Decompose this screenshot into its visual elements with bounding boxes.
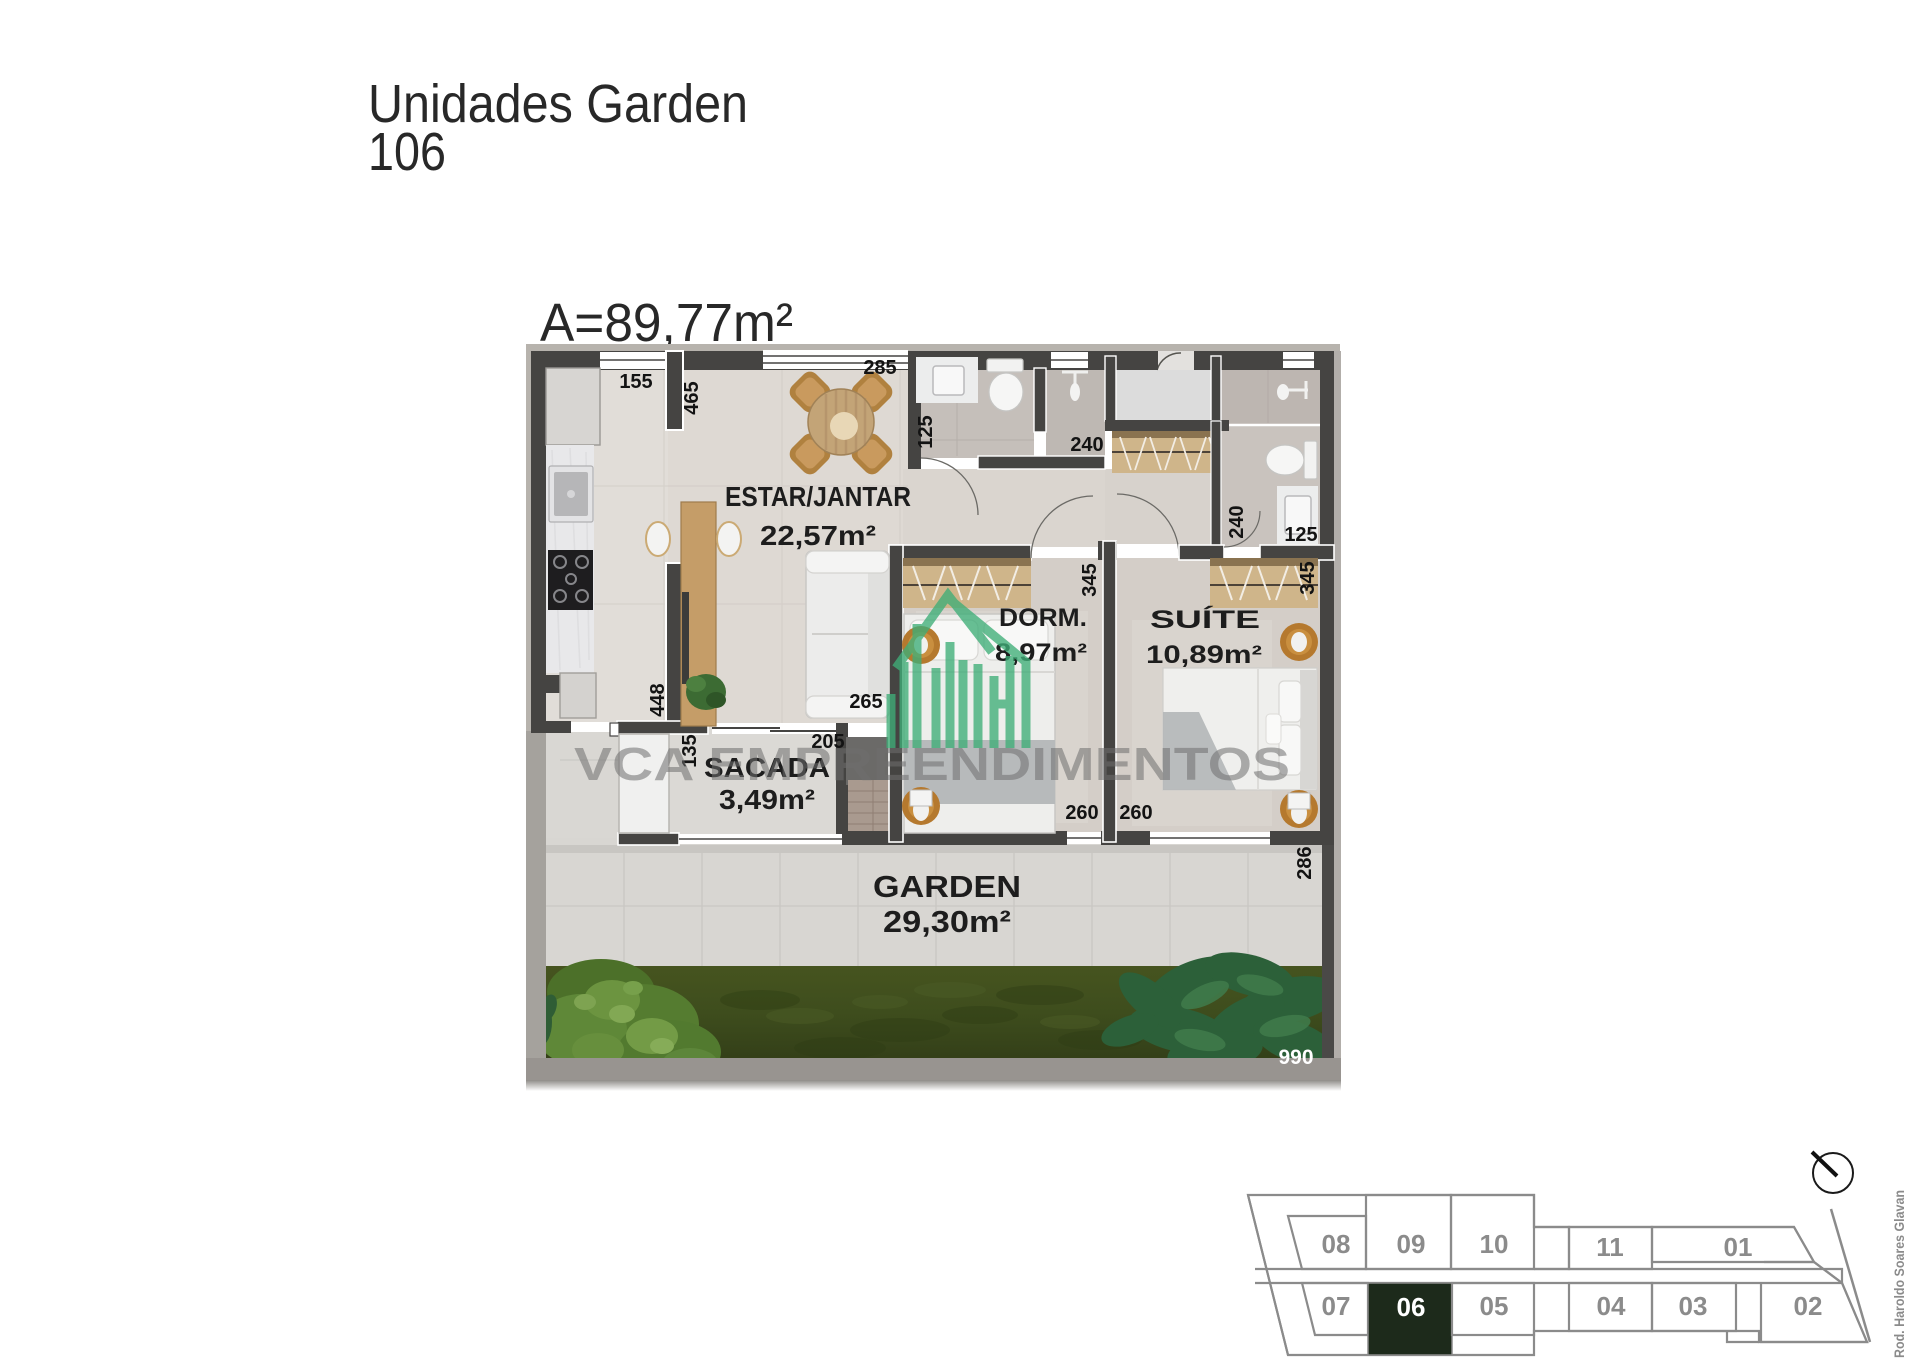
svg-text:448: 448 <box>647 683 669 716</box>
svg-text:125: 125 <box>1284 524 1317 546</box>
svg-text:10,89m²: 10,89m² <box>1146 641 1262 669</box>
svg-text:07: 07 <box>1322 1291 1351 1321</box>
svg-text:09: 09 <box>1397 1229 1426 1259</box>
svg-text:06: 06 <box>1397 1292 1426 1322</box>
svg-text:22,57m²: 22,57m² <box>760 520 876 551</box>
svg-text:285: 285 <box>863 357 896 379</box>
svg-text:03: 03 <box>1679 1291 1708 1321</box>
svg-text:286: 286 <box>1294 846 1316 879</box>
svg-text:260: 260 <box>1065 802 1098 824</box>
svg-text:GARDEN: GARDEN <box>873 869 1021 904</box>
svg-text:465: 465 <box>681 381 703 414</box>
svg-text:106: 106 <box>368 122 446 182</box>
svg-text:240: 240 <box>1070 434 1103 456</box>
svg-text:29,30m²: 29,30m² <box>883 904 1011 939</box>
svg-text:265: 265 <box>849 691 882 713</box>
svg-text:990: 990 <box>1278 1046 1313 1069</box>
svg-text:Rod. Haroldo Soares Glavan: Rod. Haroldo Soares Glavan <box>1891 1190 1907 1358</box>
svg-text:345: 345 <box>1079 563 1101 596</box>
svg-text:SUÍTE: SUÍTE <box>1150 605 1260 634</box>
svg-text:DORM.: DORM. <box>999 604 1087 632</box>
svg-text:240: 240 <box>1226 505 1248 538</box>
svg-text:VCA EMPREENDIMENTOS: VCA EMPREENDIMENTOS <box>574 738 1290 790</box>
svg-text:01: 01 <box>1724 1232 1753 1262</box>
svg-text:260: 260 <box>1119 802 1152 824</box>
svg-text:345: 345 <box>1297 561 1319 594</box>
svg-text:05: 05 <box>1480 1291 1509 1321</box>
svg-text:ESTAR/JANTAR: ESTAR/JANTAR <box>725 481 911 512</box>
svg-text:04: 04 <box>1597 1291 1626 1321</box>
svg-text:08: 08 <box>1322 1229 1351 1259</box>
svg-text:125: 125 <box>915 415 937 448</box>
svg-text:02: 02 <box>1794 1291 1823 1321</box>
svg-text:155: 155 <box>619 371 652 393</box>
svg-text:10: 10 <box>1480 1229 1509 1259</box>
svg-text:11: 11 <box>1596 1232 1624 1262</box>
